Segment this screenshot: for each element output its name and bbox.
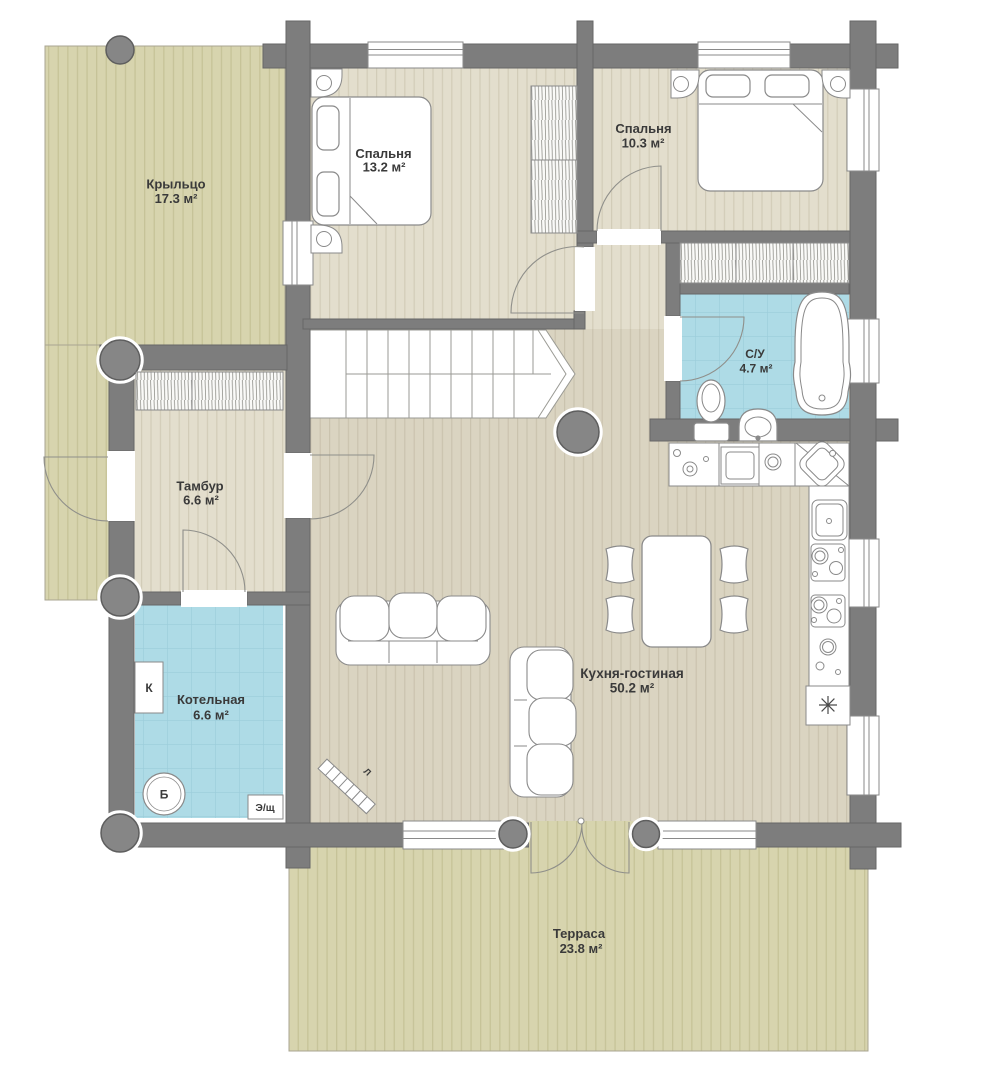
svg-text:23.8 м²: 23.8 м² bbox=[560, 941, 604, 956]
svg-text:Э/щ: Э/щ bbox=[255, 802, 274, 814]
svg-text:10.3 м²: 10.3 м² bbox=[622, 136, 666, 151]
svg-text:4.7 м²: 4.7 м² bbox=[740, 362, 773, 376]
svg-text:17.3 м²: 17.3 м² bbox=[155, 191, 199, 206]
svg-text:13.2 м²: 13.2 м² bbox=[363, 160, 407, 175]
svg-text:Б: Б bbox=[160, 788, 169, 802]
svg-text:Кухня-гостиная: Кухня-гостиная bbox=[580, 666, 683, 681]
svg-text:Терраса: Терраса bbox=[553, 926, 606, 941]
svg-text:Тамбур: Тамбур bbox=[176, 479, 223, 494]
svg-text:Котельная: Котельная bbox=[177, 692, 245, 707]
svg-text:Крыльцо: Крыльцо bbox=[146, 177, 205, 192]
svg-text:50.2 м²: 50.2 м² bbox=[610, 681, 655, 696]
svg-text:К: К bbox=[145, 681, 153, 695]
svg-text:Спальня: Спальня bbox=[615, 121, 671, 136]
svg-text:С/У: С/У bbox=[745, 347, 765, 361]
svg-text:6.6 м²: 6.6 м² bbox=[193, 708, 229, 723]
svg-text:6.6 м²: 6.6 м² bbox=[183, 493, 219, 508]
